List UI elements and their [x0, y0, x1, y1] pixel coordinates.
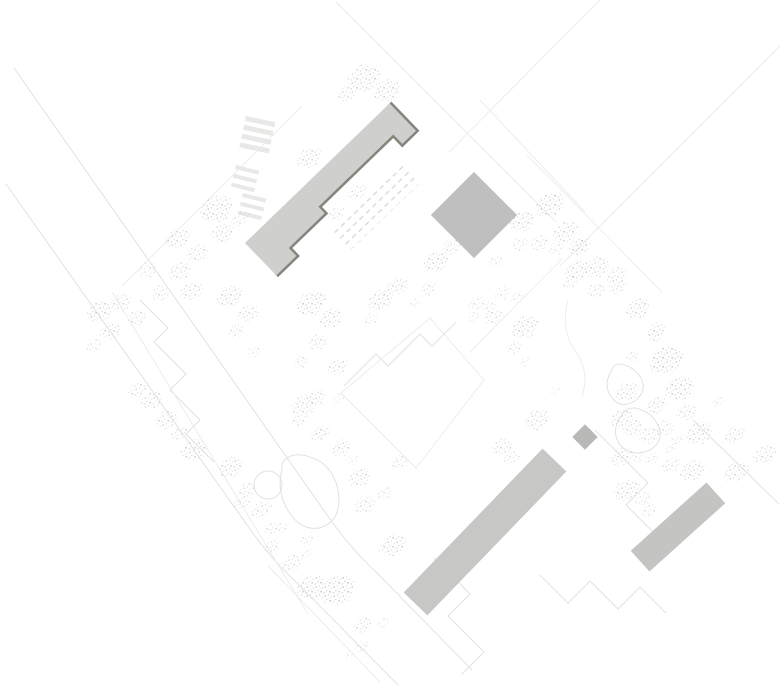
tree-canopy [536, 201, 551, 216]
tree-symbol [376, 618, 389, 628]
tree-canopy [246, 350, 254, 358]
tree-canopy [548, 246, 557, 255]
road-line [540, 575, 666, 613]
tree-canopy [490, 302, 497, 309]
tree-canopy [678, 434, 685, 441]
tree-canopy [121, 295, 131, 305]
tree-canopy [597, 283, 606, 292]
tree-canopy [283, 523, 289, 529]
tree-canopy [368, 296, 381, 309]
tree-canopy [327, 364, 338, 375]
tree-symbol [86, 338, 103, 352]
tree-canopy [582, 238, 591, 247]
tree-symbol [300, 548, 313, 558]
tree-canopy [550, 389, 556, 395]
tree-canopy [638, 298, 650, 310]
tree-canopy [307, 548, 313, 554]
tree-symbol [561, 274, 578, 288]
tree-symbol [337, 86, 356, 101]
tree-canopy [371, 313, 378, 320]
tree-canopy [570, 275, 578, 283]
tree-symbol [138, 262, 157, 277]
road-line [254, 471, 282, 499]
road-network [6, 0, 780, 685]
tree-canopy [301, 356, 308, 363]
tree-canopy [358, 185, 367, 194]
road-line [14, 68, 472, 670]
tree-canopy [398, 278, 408, 288]
tree-canopy [319, 315, 331, 327]
tree-symbol [308, 334, 327, 349]
tree-canopy [680, 466, 693, 479]
tree-canopy [622, 425, 633, 436]
tree-canopy [424, 258, 437, 271]
tree-symbol [524, 410, 549, 430]
tree-canopy [737, 462, 749, 474]
tree-canopy [376, 621, 383, 628]
tree-symbol [168, 262, 191, 281]
tree-symbol [408, 298, 421, 308]
road-line [341, 318, 484, 468]
crosswalk-bar [245, 116, 275, 127]
tree-canopy [363, 618, 372, 627]
tree-symbol [391, 455, 408, 469]
tree-canopy [468, 301, 477, 310]
tree-canopy [718, 397, 724, 403]
tree-canopy [111, 323, 121, 333]
tree-canopy [297, 299, 312, 314]
tree-canopy [211, 230, 223, 242]
tree-symbol [293, 356, 308, 368]
crosswalk-bar [233, 174, 257, 184]
tree-canopy [161, 286, 170, 295]
tree-canopy [517, 291, 524, 298]
tree-canopy [340, 393, 346, 399]
tree-canopy [680, 377, 694, 391]
tree-canopy [242, 497, 250, 505]
tree-canopy [515, 341, 523, 349]
road-line [336, 2, 556, 222]
tree-canopy [86, 343, 95, 352]
tree-symbol [281, 555, 302, 572]
tree-canopy [233, 501, 242, 510]
tree-canopy [310, 148, 322, 160]
tree-symbol [233, 496, 250, 510]
site-plan [0, 0, 780, 685]
tree-canopy [100, 328, 111, 339]
building [431, 172, 517, 258]
tree-canopy [557, 242, 565, 250]
tree-canopy [530, 240, 540, 250]
tree-canopy [429, 283, 437, 291]
tree-symbol [353, 617, 372, 632]
tree-canopy [676, 409, 687, 420]
tree-canopy [649, 505, 657, 513]
crosswalk-bar [240, 202, 264, 212]
tree-canopy [300, 551, 307, 558]
tree-canopy [525, 317, 538, 330]
tree-canopy [655, 329, 663, 337]
tree-canopy [328, 212, 337, 221]
tree-canopy [138, 267, 148, 277]
tree-canopy [585, 263, 598, 276]
tree-canopy [272, 540, 280, 548]
tree-canopy [587, 287, 597, 297]
tree-canopy [724, 468, 737, 481]
tree-canopy [665, 384, 680, 399]
tree-canopy [317, 390, 326, 399]
tree-symbol [550, 386, 561, 395]
tree-canopy [671, 443, 677, 449]
tree-canopy [264, 526, 273, 535]
tree-canopy [141, 397, 152, 408]
tree-canopy [387, 283, 398, 294]
tree-symbol [151, 285, 170, 300]
tree-symbol [587, 282, 606, 297]
tree-symbol [231, 211, 250, 226]
tree-canopy [127, 315, 137, 325]
tree-canopy [337, 91, 347, 101]
tree-symbol [297, 148, 322, 168]
tree-symbol [511, 237, 528, 251]
tree-canopy [323, 426, 330, 433]
tree-canopy [724, 432, 735, 443]
tree-symbol [299, 534, 314, 546]
tree-canopy [618, 280, 627, 289]
building [572, 424, 597, 449]
tree-symbol [585, 257, 610, 277]
tree-canopy [297, 583, 312, 598]
tree-symbol [199, 195, 233, 222]
tree-canopy [307, 394, 317, 404]
tree-canopy [503, 287, 511, 295]
tree-symbol [686, 422, 713, 444]
tree-canopy [231, 216, 241, 226]
tree-canopy [634, 497, 643, 506]
tree-canopy [165, 235, 178, 248]
tree-canopy [350, 651, 355, 656]
tree-canopy [494, 291, 503, 300]
tree-canopy [128, 387, 138, 397]
tree-symbol [187, 245, 208, 262]
tree-canopy [180, 262, 191, 273]
tree-symbol [753, 446, 776, 465]
tree-canopy [638, 452, 644, 458]
tree-canopy [639, 432, 650, 443]
tree-symbol [110, 295, 131, 312]
tree-canopy [363, 641, 370, 648]
crosswalk-bar [239, 142, 269, 153]
tree-symbol [128, 382, 147, 397]
crosswalk-bar [242, 193, 266, 203]
tree-canopy [652, 452, 659, 459]
tree-symbol [676, 404, 697, 421]
tree-symbol [345, 651, 356, 660]
tree-canopy [524, 416, 537, 429]
tree-symbol [348, 184, 367, 199]
tree-symbol [424, 252, 449, 272]
tree-symbol [442, 239, 461, 254]
tree-canopy [627, 354, 633, 360]
tree-canopy [649, 355, 667, 373]
tree-canopy [468, 315, 475, 322]
tree-canopy [511, 242, 520, 251]
tree-canopy [352, 455, 358, 461]
tree-symbol [246, 346, 261, 358]
tree-symbol [548, 241, 565, 255]
tree-canopy [452, 240, 461, 249]
tree-symbol [237, 482, 256, 497]
tree-canopy [765, 446, 776, 457]
tree-symbol [724, 462, 749, 482]
tree-canopy [360, 468, 371, 479]
tree-canopy [180, 288, 192, 300]
tree-canopy [315, 430, 323, 438]
tree-canopy [299, 538, 307, 546]
tree-canopy [735, 427, 745, 437]
tree-symbol [387, 278, 408, 295]
tree-canopy [363, 317, 371, 325]
tree-canopy [610, 415, 622, 427]
tree-canopy [510, 217, 523, 230]
tree-symbol [363, 313, 378, 325]
tree-canopy [251, 507, 262, 518]
tree-canopy [509, 295, 517, 303]
tree-canopy [693, 460, 705, 472]
tree-symbol [610, 448, 633, 467]
tree-canopy [180, 427, 188, 435]
road-line [565, 300, 585, 396]
tree-canopy [223, 224, 234, 235]
tree-canopy [217, 292, 230, 305]
tree-canopy [555, 386, 560, 391]
tree-canopy [374, 86, 388, 100]
tree-symbol [228, 324, 245, 338]
building [404, 449, 567, 616]
tree-canopy [181, 446, 195, 460]
tree-symbol [238, 305, 259, 322]
tree-symbol [530, 235, 549, 250]
tree-canopy [355, 645, 363, 653]
tree-symbol [297, 291, 326, 315]
tree-canopy [379, 541, 393, 555]
tree-canopy [598, 257, 610, 269]
tree-canopy [627, 383, 638, 394]
tree-symbol [536, 193, 565, 217]
tree-canopy [503, 456, 512, 465]
tree-canopy [292, 401, 305, 414]
tree-symbol [219, 457, 244, 477]
tree-canopy [644, 456, 652, 464]
road-line [470, 258, 563, 352]
tree-canopy [489, 259, 497, 267]
tree-canopy [631, 455, 638, 462]
crosswalk-bar [231, 182, 255, 192]
tree-symbol [263, 539, 280, 553]
tree-canopy [232, 457, 244, 469]
tree-canopy [151, 290, 161, 300]
tree-canopy [148, 263, 157, 272]
tree-symbol [468, 296, 485, 310]
tree-symbol [348, 468, 371, 487]
tree-canopy [608, 284, 618, 294]
tree-canopy [199, 204, 217, 222]
tree-canopy [237, 325, 245, 333]
tree-canopy [700, 423, 713, 436]
road-line [280, 455, 339, 529]
tree-symbol [662, 457, 681, 472]
tree-canopy [655, 425, 665, 435]
tree-canopy [198, 245, 208, 255]
tree-canopy [262, 502, 272, 512]
tree-symbol [724, 427, 745, 444]
tree-symbol [251, 502, 272, 519]
tree-symbol [355, 641, 370, 653]
tree-canopy [610, 454, 622, 466]
tree-canopy [308, 339, 318, 349]
tree-canopy [503, 439, 513, 449]
crosswalk-bar [241, 134, 271, 145]
tree-canopy [686, 429, 700, 443]
tree-symbol [680, 460, 705, 480]
tree-symbol [155, 411, 178, 430]
tree-canopy [383, 618, 389, 624]
road-line [112, 292, 308, 614]
tree-canopy [711, 400, 718, 407]
tree-symbol [354, 497, 375, 514]
tree-canopy [615, 389, 627, 401]
tree-canopy [168, 268, 180, 280]
tree-symbol [509, 291, 524, 303]
tree-symbol [319, 309, 342, 328]
tree-canopy [687, 404, 697, 414]
tree-canopy [345, 654, 351, 660]
tree-canopy [238, 310, 249, 321]
tree-canopy [338, 359, 348, 369]
tree-symbol [489, 255, 504, 267]
tree-symbol [127, 310, 146, 325]
tree-canopy [171, 431, 180, 440]
tree-canopy [331, 309, 342, 320]
tree-canopy [254, 346, 261, 353]
tree-canopy [281, 560, 292, 571]
tree-canopy [312, 292, 326, 306]
tree-symbol [181, 439, 208, 461]
tree-canopy [483, 314, 493, 324]
tree-canopy [347, 87, 356, 96]
tree-canopy [393, 535, 406, 548]
tree-symbol [376, 486, 393, 500]
tree-symbol [165, 229, 190, 249]
tree-symbol [615, 383, 638, 402]
tree-canopy [477, 297, 485, 305]
tree-canopy [365, 65, 381, 81]
tree-canopy [219, 463, 232, 476]
tree-canopy [376, 491, 385, 500]
tree-canopy [437, 252, 449, 264]
tree-canopy [345, 458, 352, 465]
tree-symbol [87, 302, 112, 322]
tree-symbol [553, 222, 578, 242]
tree-canopy [155, 417, 167, 429]
tree-symbol [494, 286, 511, 300]
crosswalk-stripes [239, 116, 275, 154]
tree-canopy [192, 282, 203, 293]
site-plan-svg [0, 0, 780, 685]
tree-symbol [631, 452, 644, 462]
tree-canopy [187, 250, 198, 261]
tree-canopy [400, 456, 408, 464]
tree-symbol [468, 312, 481, 322]
tree-canopy [230, 286, 242, 298]
tree-canopy [332, 446, 338, 452]
tree-canopy [228, 329, 237, 338]
tree-canopy [217, 196, 233, 212]
tree-canopy [632, 351, 637, 356]
tree-symbol [328, 207, 345, 221]
tree-symbol [640, 504, 657, 518]
tree-symbol [327, 359, 348, 376]
tree-symbol [180, 282, 203, 301]
tree-canopy [415, 298, 421, 304]
tree-canopy [506, 345, 515, 354]
tree-canopy [318, 335, 327, 344]
tree-symbol [506, 340, 523, 354]
tree-canopy [342, 440, 352, 450]
tree-canopy [525, 357, 531, 363]
tree-canopy [420, 287, 429, 296]
tree-canopy [319, 585, 338, 604]
tree-canopy [137, 311, 146, 320]
tree-canopy [167, 411, 178, 422]
tree-canopy [753, 452, 765, 464]
tree-canopy [87, 308, 100, 321]
tree-canopy [333, 396, 340, 403]
tree-canopy [537, 410, 549, 422]
tree-canopy [237, 487, 247, 497]
tree-symbol [644, 452, 659, 464]
tree-canopy [633, 420, 643, 430]
tree-canopy [338, 576, 355, 593]
tree-canopy [442, 244, 452, 254]
tree-canopy [291, 418, 300, 427]
road-line [449, 0, 600, 152]
tree-canopy [520, 238, 528, 246]
tree-canopy [152, 392, 162, 402]
tree-canopy [511, 323, 525, 337]
tree-symbol [664, 443, 677, 453]
crosswalk-stripes [231, 165, 260, 192]
tree-canopy [348, 189, 358, 199]
road-line [560, 46, 780, 266]
tree-canopy [625, 304, 638, 317]
crosswalk-bar [243, 125, 273, 136]
tree-canopy [657, 397, 667, 407]
tree-symbol [420, 282, 437, 296]
tree-canopy [493, 310, 502, 319]
tree-canopy [195, 440, 208, 453]
tree-canopy [354, 502, 365, 513]
tree-canopy [388, 80, 401, 93]
tree-symbol [379, 534, 406, 556]
tree-symbol [291, 413, 308, 427]
tree-canopy [667, 347, 683, 363]
tree-canopy [551, 194, 565, 208]
tree-symbol [646, 397, 667, 414]
tree-canopy [408, 301, 415, 308]
tree-canopy [540, 236, 549, 245]
tree-canopy [622, 448, 633, 459]
